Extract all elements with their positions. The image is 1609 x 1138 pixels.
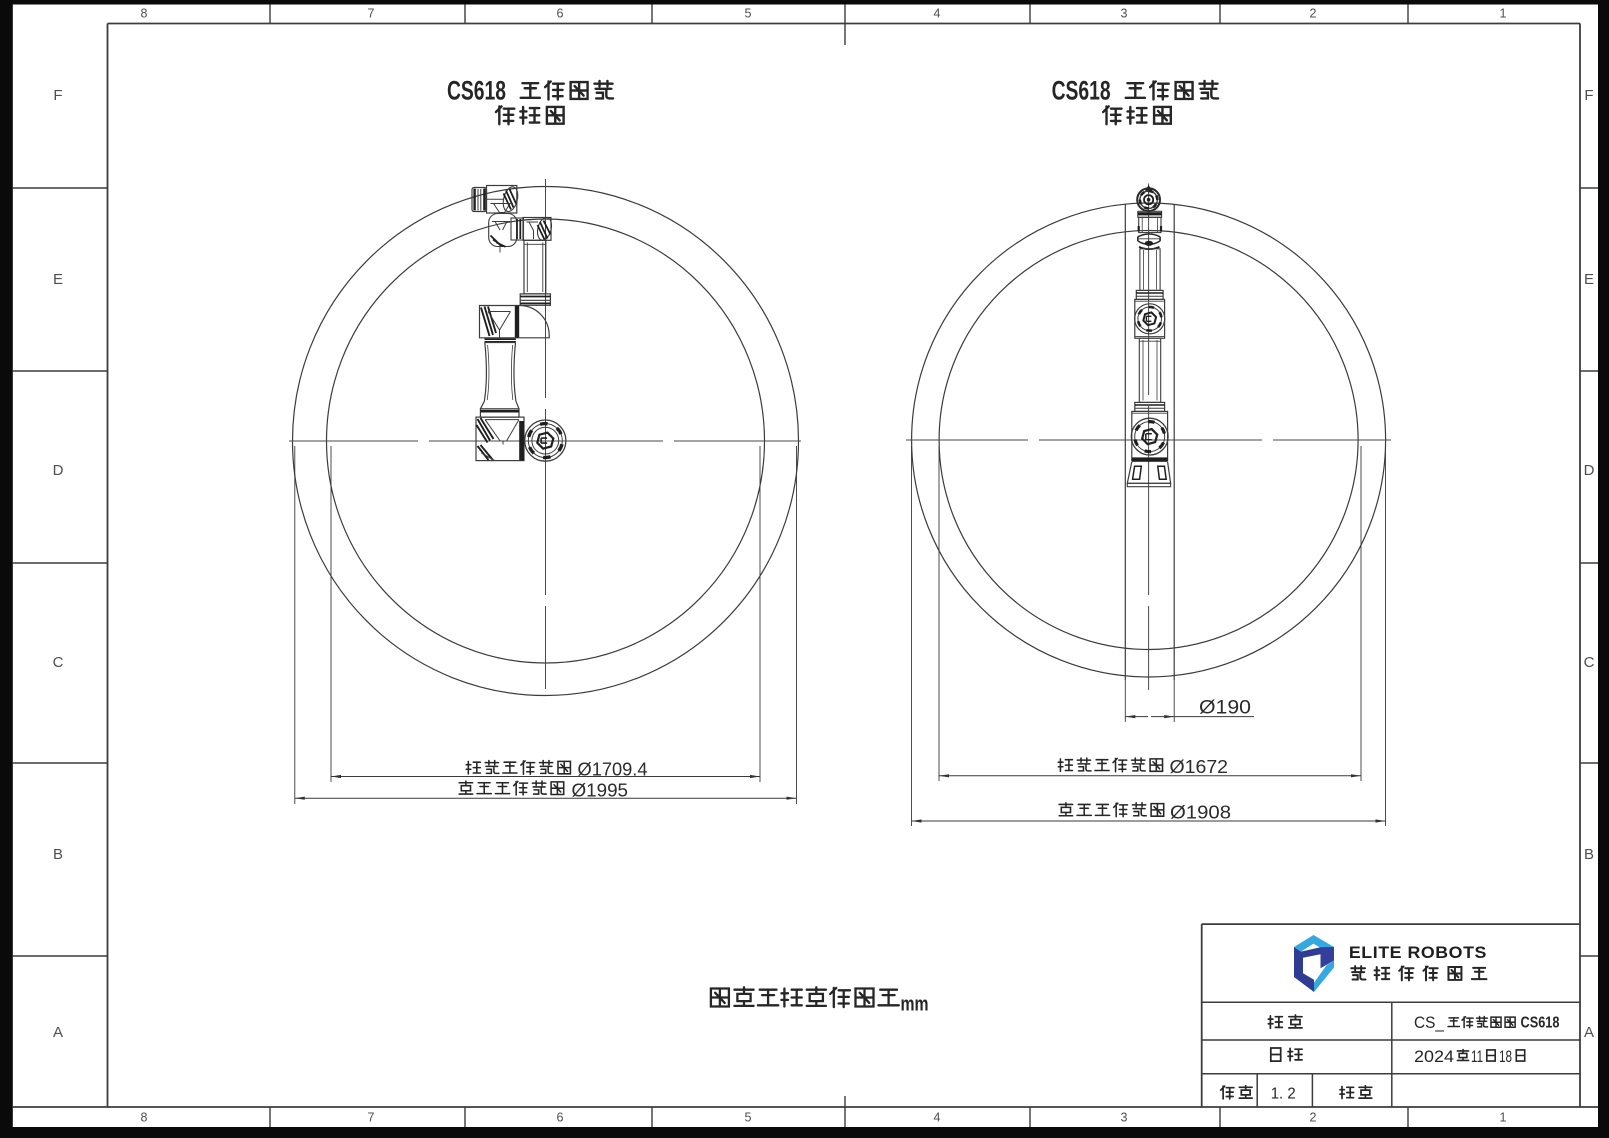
svg-text:E: E bbox=[1584, 271, 1594, 288]
svg-text:A: A bbox=[53, 1024, 63, 1041]
svg-text:2: 2 bbox=[1310, 7, 1317, 21]
svg-text:B: B bbox=[53, 846, 63, 863]
svg-text:Ø1709.4: Ø1709.4 bbox=[578, 758, 648, 779]
svg-text:E: E bbox=[53, 271, 63, 288]
svg-text:Ø1995: Ø1995 bbox=[572, 779, 629, 800]
svg-text:B: B bbox=[1584, 846, 1594, 863]
svg-text:mm: mm bbox=[901, 994, 929, 1016]
svg-text:F: F bbox=[53, 87, 62, 104]
svg-text:Ø1672: Ø1672 bbox=[1170, 756, 1229, 777]
svg-text:6: 6 bbox=[557, 7, 564, 21]
svg-text:1: 1 bbox=[1500, 1111, 1507, 1125]
svg-text:D: D bbox=[53, 462, 64, 479]
svg-text:A: A bbox=[1584, 1024, 1594, 1041]
svg-text:Ø1908: Ø1908 bbox=[1170, 801, 1231, 822]
svg-text:CS_: CS_ bbox=[1414, 1013, 1444, 1032]
svg-text:F: F bbox=[1584, 87, 1593, 104]
svg-text:5: 5 bbox=[745, 7, 752, 21]
svg-text:C: C bbox=[53, 654, 64, 671]
svg-text:18: 18 bbox=[1499, 1048, 1512, 1066]
svg-text:4: 4 bbox=[934, 7, 941, 21]
svg-text:5: 5 bbox=[745, 1111, 752, 1125]
svg-text:3: 3 bbox=[1121, 1111, 1128, 1125]
svg-text:CS618: CS618 bbox=[1052, 75, 1111, 105]
svg-text:ELITE ROBOTS: ELITE ROBOTS bbox=[1349, 944, 1487, 962]
svg-text:3: 3 bbox=[1121, 7, 1128, 21]
svg-text:2024: 2024 bbox=[1414, 1048, 1454, 1066]
svg-text:D: D bbox=[1584, 462, 1595, 479]
svg-text:11: 11 bbox=[1471, 1048, 1483, 1066]
svg-text:1: 1 bbox=[1500, 7, 1507, 21]
svg-text:1. 2: 1. 2 bbox=[1271, 1086, 1296, 1103]
svg-text:CS618: CS618 bbox=[447, 75, 506, 105]
svg-text:7: 7 bbox=[368, 1111, 375, 1125]
svg-text:4: 4 bbox=[934, 1111, 941, 1125]
svg-text:Ø190: Ø190 bbox=[1199, 697, 1251, 719]
svg-text:6: 6 bbox=[557, 1111, 564, 1125]
svg-text:CS618: CS618 bbox=[1521, 1015, 1560, 1032]
svg-text:7: 7 bbox=[368, 7, 375, 21]
svg-text:8: 8 bbox=[141, 1111, 148, 1125]
svg-text:2: 2 bbox=[1310, 1111, 1317, 1125]
svg-text:C: C bbox=[1584, 654, 1595, 671]
svg-text:8: 8 bbox=[141, 7, 148, 21]
